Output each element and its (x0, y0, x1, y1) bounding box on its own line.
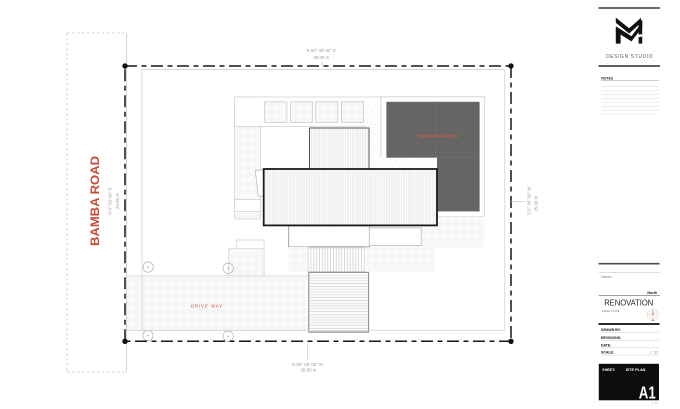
svg-text:DRIVE WAY: DRIVE WAY (191, 304, 223, 309)
svg-text:DATE:: DATE: (601, 343, 611, 347)
svg-text:1 : 50: 1 : 50 (649, 351, 658, 355)
svg-text:SCALE:: SCALE: (601, 351, 614, 355)
svg-text:BAMBA ROAD: BAMBA ROAD (88, 156, 102, 246)
svg-text:35.00 m: 35.00 m (313, 55, 329, 60)
svg-text:DRAWN BY:: DRAWN BY: (601, 328, 621, 332)
svg-text:S 0° 00' 00" W: S 0° 00' 00" W (527, 186, 532, 215)
svg-text:Owner:: Owner: (601, 275, 613, 279)
svg-text:25.00 m: 25.00 m (115, 193, 120, 209)
svg-text:North: North (647, 291, 657, 295)
svg-text:OWNER, HOUSE: OWNER, HOUSE (602, 309, 620, 313)
svg-text:SITE PLAN: SITE PLAN (626, 368, 646, 372)
svg-text:1 : 50: 1 : 50 (652, 402, 659, 405)
svg-text:DESIGN STUDIO: DESIGN STUDIO (606, 54, 653, 60)
svg-text:NOTES: NOTES (601, 76, 613, 80)
svg-text:RENOVATION: RENOVATION (604, 298, 653, 307)
svg-text:SHEET:: SHEET: (602, 368, 615, 372)
svg-text:N 90° 00' 00" W: N 90° 00' 00" W (292, 362, 324, 367)
svg-text:S 90° 00' 00" E: S 90° 00' 00" E (307, 48, 337, 53)
svg-text:REVISIONS:: REVISIONS: (601, 336, 621, 340)
svg-text:25.00 m: 25.00 m (534, 195, 539, 211)
svg-text:A1: A1 (639, 383, 656, 403)
svg-text:SWIMMING POOL: SWIMMING POOL (418, 134, 459, 139)
svg-text:35.00 m: 35.00 m (301, 368, 317, 373)
svg-text:N 0° 00' 00" E: N 0° 00' 00" E (108, 187, 113, 214)
